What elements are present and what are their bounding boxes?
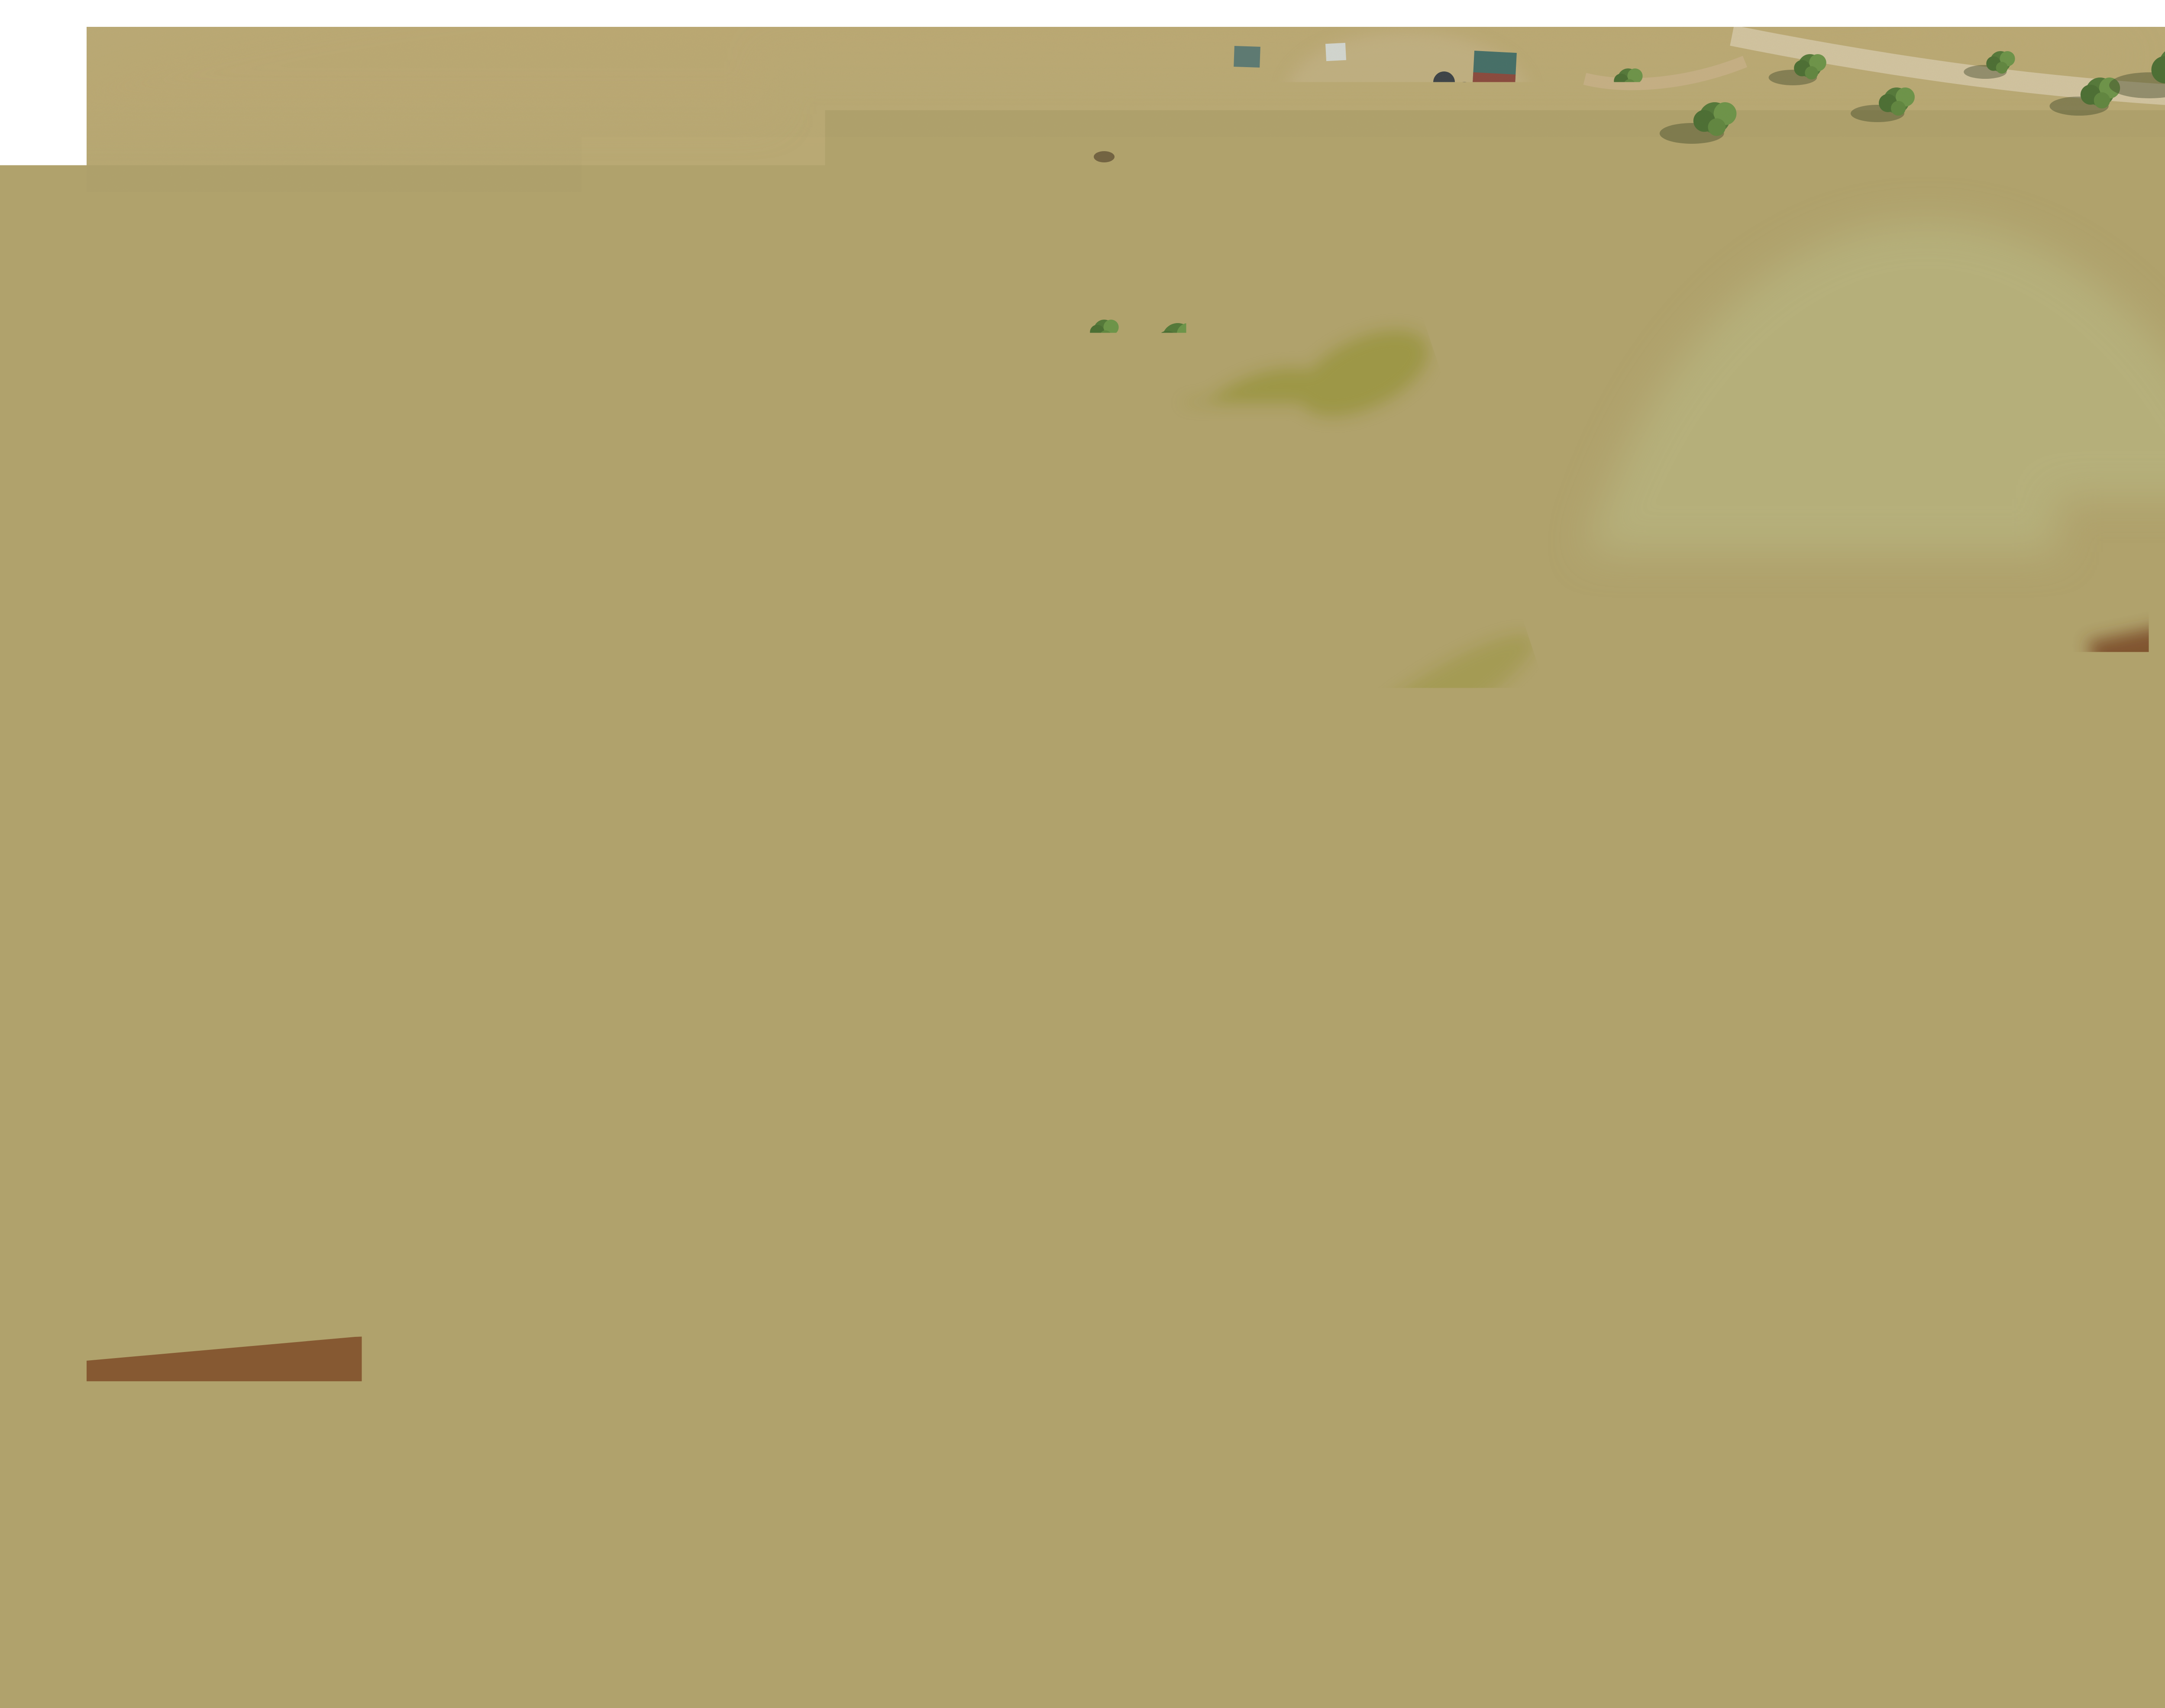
lot-47-area: 1.00ha xyxy=(839,878,963,914)
indicative-boundary-watermark: Indicative Boundary xyxy=(120,1521,608,1563)
lot-48-area: 1.00ha xyxy=(1315,835,1439,870)
lot-48-number: 48 xyxy=(1347,739,1415,799)
raywhite-office-name: Rural Inverell xyxy=(1093,1679,1202,1703)
lot-47-number: 47 xyxy=(867,785,936,845)
raywhite-logo-square xyxy=(1017,1616,1083,1701)
photo-grain xyxy=(87,27,2165,1601)
property-listing-image: { "photo": { "watermark": "Indicative Bo… xyxy=(0,0,2165,1708)
raywhite-brand-name: RayWhite.® xyxy=(1092,1629,1257,1679)
registered-trademark-icon: ® xyxy=(1251,1654,1257,1667)
aerial-photo xyxy=(87,27,2165,1601)
aerial-scene xyxy=(87,27,2165,1601)
